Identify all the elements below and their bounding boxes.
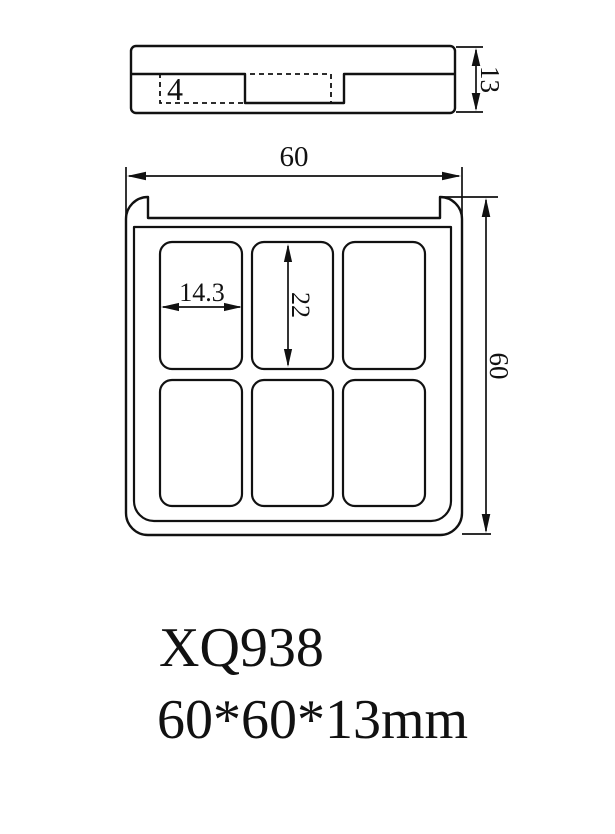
overall-size-text: 60*60*13mm <box>157 689 468 751</box>
pan-height-label: 22 <box>286 292 315 318</box>
width-label: 60 <box>280 141 309 173</box>
technical-drawing: 4 13 60 <box>0 0 615 829</box>
width-arrowhead-right-icon <box>442 172 461 181</box>
side-depth-label: 4 <box>167 71 183 107</box>
height-label: 60 <box>484 353 514 380</box>
pan-rect-6 <box>343 380 425 506</box>
model-code-text: XQ938 <box>159 617 324 679</box>
technical-drawing-page: 4 13 60 <box>0 0 615 829</box>
pan-width-label: 14.3 <box>179 278 225 307</box>
side-height-arrowhead-bottom-icon <box>472 93 481 111</box>
caption: XQ938 60*60*13mm <box>157 617 468 751</box>
front-view: 60 14.3 22 <box>126 141 514 535</box>
pan-rect-4 <box>160 380 242 506</box>
pan-rect-3 <box>343 242 425 369</box>
height-arrowhead-top-icon <box>482 198 491 217</box>
side-height-label: 13 <box>475 66 505 93</box>
side-view: 4 13 <box>131 46 505 113</box>
width-arrowhead-left-icon <box>127 172 146 181</box>
side-height-arrowhead-top-icon <box>472 48 481 66</box>
height-arrowhead-bottom-icon <box>482 514 491 533</box>
pan-rect-5 <box>252 380 333 506</box>
